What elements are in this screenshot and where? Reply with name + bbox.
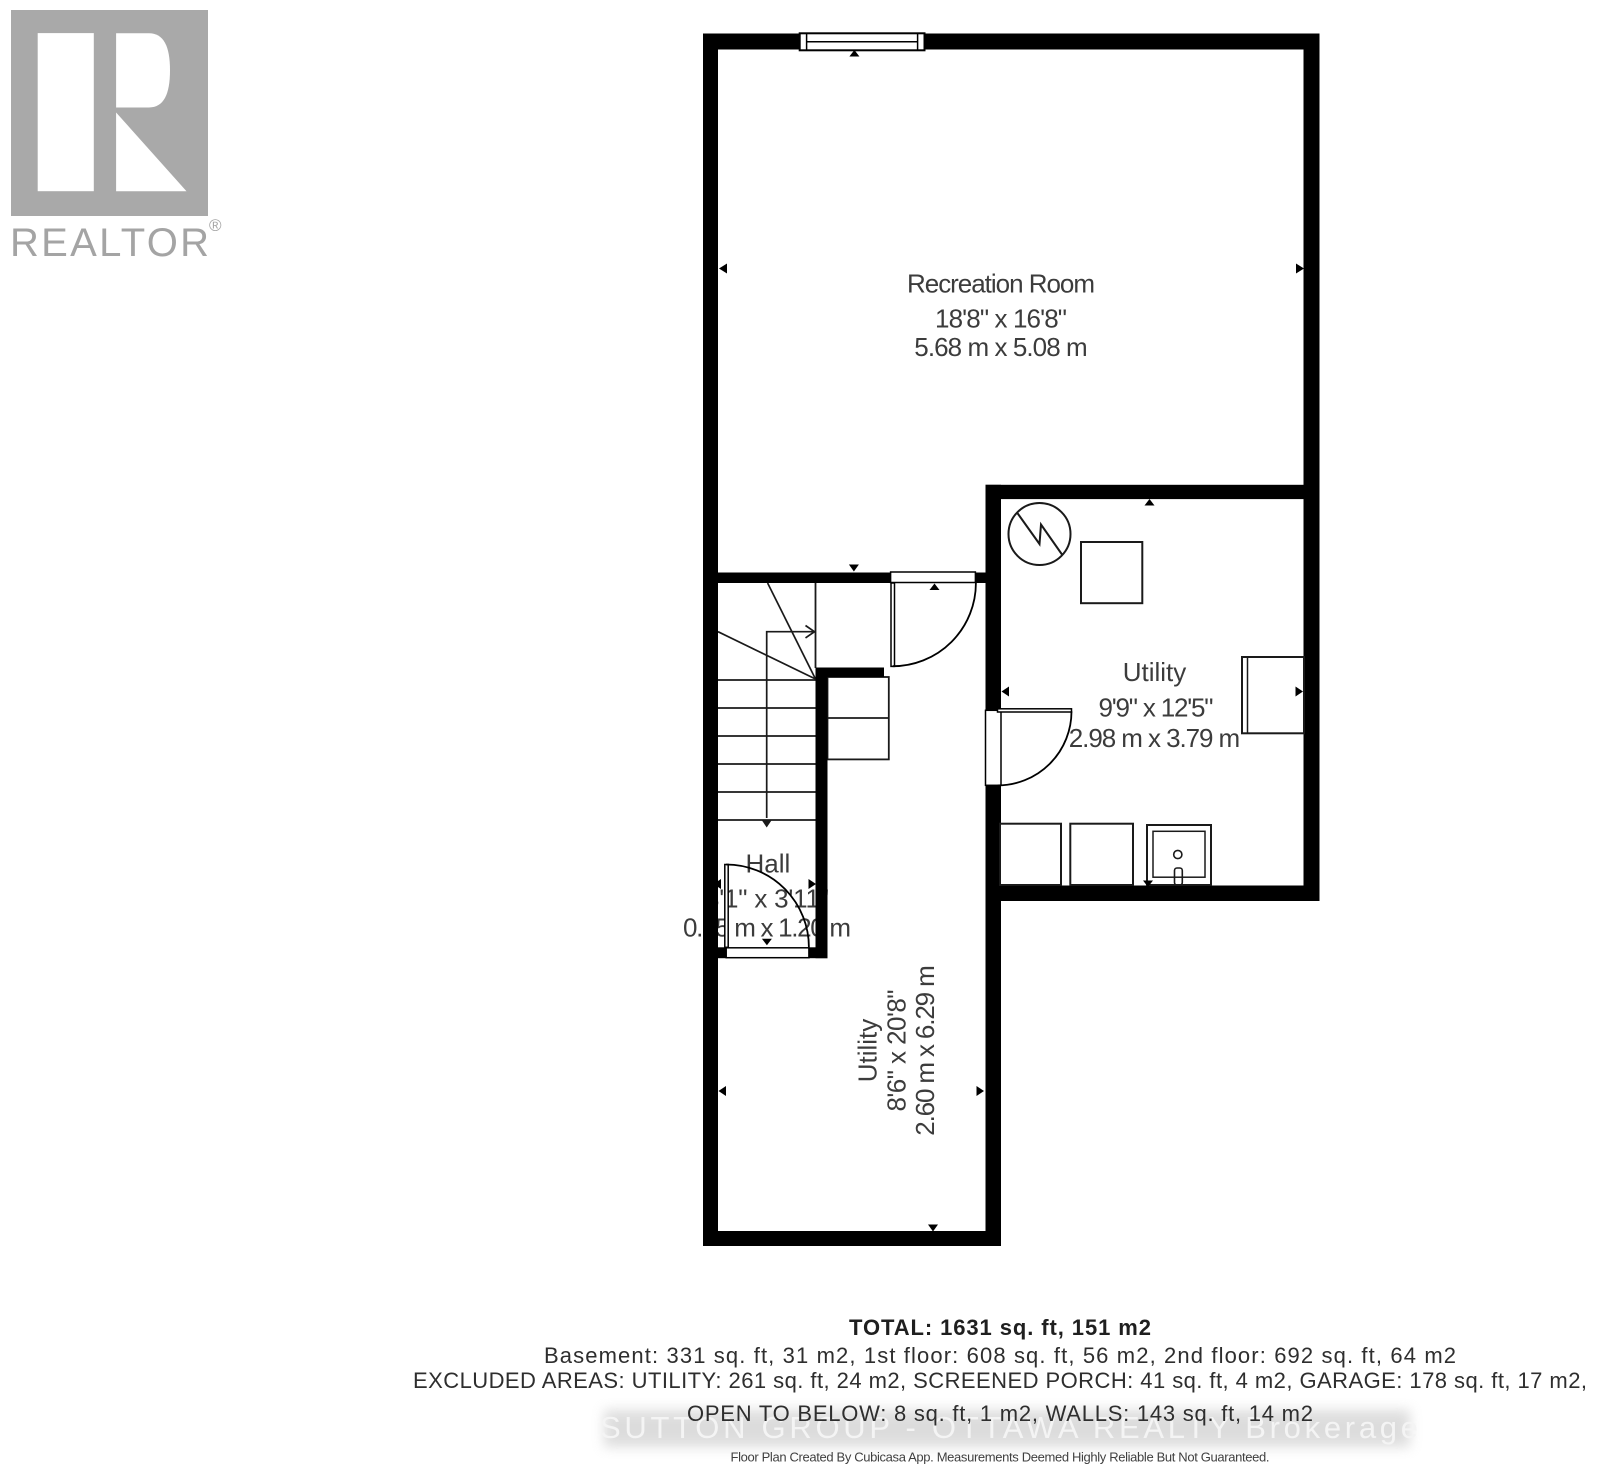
svg-text:2.98 m x 3.79 m: 2.98 m x 3.79 m: [1069, 723, 1240, 753]
svg-text:EXCLUDED AREAS: UTILITY: 261 s: EXCLUDED AREAS: UTILITY: 261 sq. ft, 24 …: [413, 1368, 1587, 1393]
svg-text:Floor Plan Created By Cubicasa: Floor Plan Created By Cubicasa App. Meas…: [731, 1449, 1270, 1464]
svg-text:9'9" x 12'5": 9'9" x 12'5": [1099, 692, 1214, 722]
svg-text:REALTOR: REALTOR: [10, 221, 209, 265]
svg-text:TOTAL: 1631 sq. ft, 151 m2: TOTAL: 1631 sq. ft, 151 m2: [849, 1315, 1151, 1340]
svg-text:8'6" x 20'8": 8'6" x 20'8": [882, 990, 912, 1112]
svg-text:Basement: 331 sq. ft, 31 m2, 1: Basement: 331 sq. ft, 31 m2, 1st floor: …: [544, 1343, 1456, 1368]
svg-text:Recreation Room: Recreation Room: [907, 269, 1095, 299]
svg-text:18'8" x 16'8": 18'8" x 16'8": [935, 304, 1067, 334]
svg-text:®: ®: [209, 216, 222, 235]
svg-text:Hall: Hall: [746, 848, 791, 878]
svg-text:Utility: Utility: [853, 1019, 883, 1083]
svg-text:Utility: Utility: [1123, 657, 1187, 687]
svg-text:2.60 m x 6.29 m: 2.60 m x 6.29 m: [910, 965, 940, 1136]
svg-text:5.68 m x 5.08 m: 5.68 m x 5.08 m: [914, 332, 1087, 362]
svg-text:OPEN TO BELOW: 8 sq. ft, 1 m2,: OPEN TO BELOW: 8 sq. ft, 1 m2, WALLS: 14…: [687, 1401, 1313, 1426]
svg-text:3'1" x 3'11": 3'1" x 3'11": [705, 884, 829, 914]
